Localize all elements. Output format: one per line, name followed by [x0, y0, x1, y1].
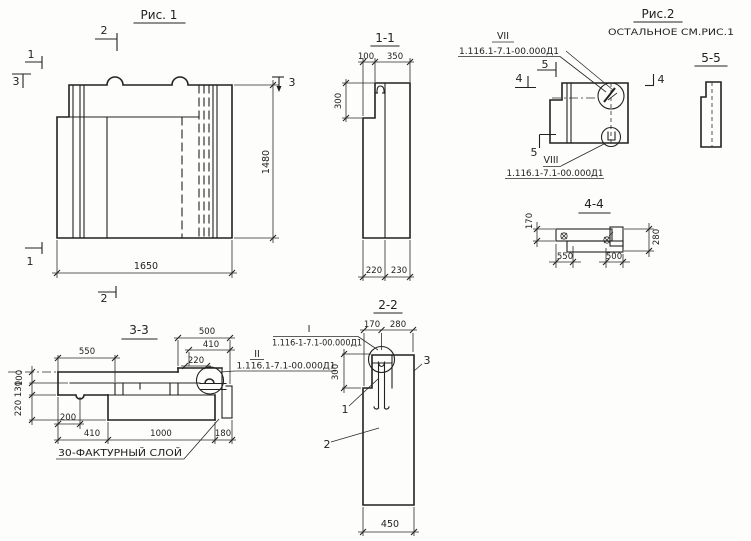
section-1-1-dim-left: 300 — [334, 79, 374, 122]
dim-100: 100 — [358, 52, 374, 62]
keyway-notch — [205, 379, 214, 384]
section-3-3-title: 3-3 — [129, 323, 149, 337]
section-4-4-outline — [556, 227, 623, 252]
section-2-2-outline — [363, 347, 414, 506]
figure1-title: Рис. 1 — [141, 8, 178, 22]
detail-i-ref: 1.116-1-7.1-00.000Д1 — [272, 339, 362, 349]
detail-vii-ref: 1.116.1-7.1-00.000Д1 — [459, 47, 559, 57]
dim-1000: 1000 — [150, 429, 172, 439]
section-2-2-title: 2-2 — [378, 298, 398, 312]
section-mark-4-right: 4 — [658, 73, 665, 86]
leader-3-label: 3 — [424, 354, 431, 367]
dim-180: 180 — [215, 429, 231, 439]
lifting-loop-symbol — [377, 86, 384, 93]
section-5-5-outline — [701, 82, 721, 147]
leader-1-label: 1 — [342, 403, 349, 416]
dim-450: 450 — [381, 519, 399, 530]
dim-220-left: 220 — [14, 400, 24, 416]
figure1-dimension-height: 1480 — [234, 80, 279, 243]
section-5-5: 5-5 — [695, 51, 727, 147]
section-5-5-title: 5-5 — [701, 51, 721, 65]
figure1-dimension-width: 1650 — [52, 240, 237, 278]
detail-i-label: I — [308, 324, 311, 335]
dim-350: 350 — [387, 52, 403, 62]
section-mark-4-left: 4 — [516, 72, 523, 85]
figure1-panel-outline — [57, 77, 232, 238]
section-1-1-dims-bottom: 220 230 — [358, 240, 414, 281]
figure1-dim-1650: 1650 — [134, 261, 158, 272]
section-mark-5-top: 5 — [542, 58, 549, 71]
dim-130: 130 — [14, 381, 24, 397]
dim-410-top: 410 — [203, 340, 219, 350]
section-2-2-dim-left: 300 — [331, 349, 371, 393]
dim-500: 500 — [606, 252, 622, 262]
section-mark-2-top: 2 — [101, 24, 108, 37]
dim-170: 170 — [525, 213, 535, 229]
section-2-2: 2-2 170 280 300 — [272, 298, 431, 536]
drawing-sheet: Рис. 1 1480 — [0, 0, 751, 541]
dim-500: 500 — [199, 327, 215, 337]
section-3-3-callout-ii: II 1.116.1-7.1-00.000Д1 — [221, 349, 336, 372]
section-mark-2-bottom: 2 — [101, 292, 108, 305]
section-1-1-outline — [363, 83, 410, 238]
figure2-section-marks: 5 4 4 5 — [515, 58, 665, 159]
detail-viii-label: VIII — [544, 155, 559, 166]
dim-410-bottom: 410 — [84, 429, 100, 439]
figure1-dim-1480: 1480 — [261, 150, 272, 174]
section-1-1-title: 1-1 — [375, 31, 395, 45]
facing-layer-note: 30-ФАКТУРНЫЙ СЛОЙ — [58, 447, 182, 459]
figure2-subtitle: ОСТАЛЬНОЕ СМ.РИС.1 — [608, 28, 734, 38]
section-2-2-dim-bottom: 450 — [358, 507, 419, 536]
section-mark-1-top: 1 — [28, 48, 35, 61]
dim-220-top: 220 — [188, 356, 204, 366]
dim-550: 550 — [79, 347, 95, 357]
figure2-panel-outline — [550, 83, 628, 147]
section-1-1-dims-top: 100 350 — [358, 52, 414, 116]
section-4-4: 4-4 170 280 550 — [525, 197, 662, 268]
loop-hook-left — [374, 407, 379, 409]
dim-300: 300 — [331, 364, 341, 380]
detail-ii-label: II — [254, 349, 260, 360]
detail-viii-ref: 1.116.1-7.1-00.000Д1 — [507, 169, 604, 179]
section-3-3-outline — [58, 367, 232, 420]
figure2: Рис.2 ОСТАЛЬНОЕ СМ.РИС.1 VII 1.116.1-7.1… — [458, 7, 734, 179]
down-arrow-icon — [277, 86, 282, 92]
dim-550: 550 — [557, 252, 573, 262]
figure2-title: Рис.2 — [641, 7, 674, 21]
loop-hook-right — [385, 407, 390, 409]
anchor-mark-icon — [604, 88, 615, 102]
detail-ii-ref: 1.116.1-7.1-00.000Д1 — [237, 362, 336, 372]
dim-280: 280 — [390, 320, 406, 330]
dim-200: 200 — [60, 413, 76, 423]
detail-vii-label: VII — [497, 31, 509, 42]
section-mark-1-bottom: 1 — [27, 255, 34, 268]
section-mark-3-right: 3 — [289, 76, 296, 89]
drawing-canvas: Рис. 1 1480 — [0, 0, 751, 541]
section-mark-5-bottom: 5 — [531, 146, 538, 159]
section-1-1: 1-1 100 350 300 — [334, 31, 414, 281]
figure2-callout-viii: VIII 1.116.1-7.1-00.000Д1 — [505, 144, 604, 179]
section-3-3-note: 30-ФАКТУРНЫЙ СЛОЙ — [56, 419, 219, 459]
section-2-2-dims-top: 170 280 — [360, 320, 417, 386]
figure1: Рис. 1 1480 — [12, 8, 296, 305]
section-mark-3-left: 3 — [13, 75, 20, 88]
section-4-4-dims: 170 280 550 500 — [525, 213, 662, 268]
dim-300: 300 — [334, 93, 344, 109]
dim-170: 170 — [364, 320, 380, 330]
section-4-4-title: 4-4 — [584, 197, 604, 211]
dim-230: 230 — [391, 266, 407, 276]
section-2-2-callout-i: I 1.116-1-7.1-00.000Д1 — [272, 324, 378, 350]
loop-detail-icon — [608, 132, 615, 140]
dim-220: 220 — [366, 266, 382, 276]
leader-2-label: 2 — [324, 438, 331, 451]
dim-280: 280 — [652, 229, 662, 245]
